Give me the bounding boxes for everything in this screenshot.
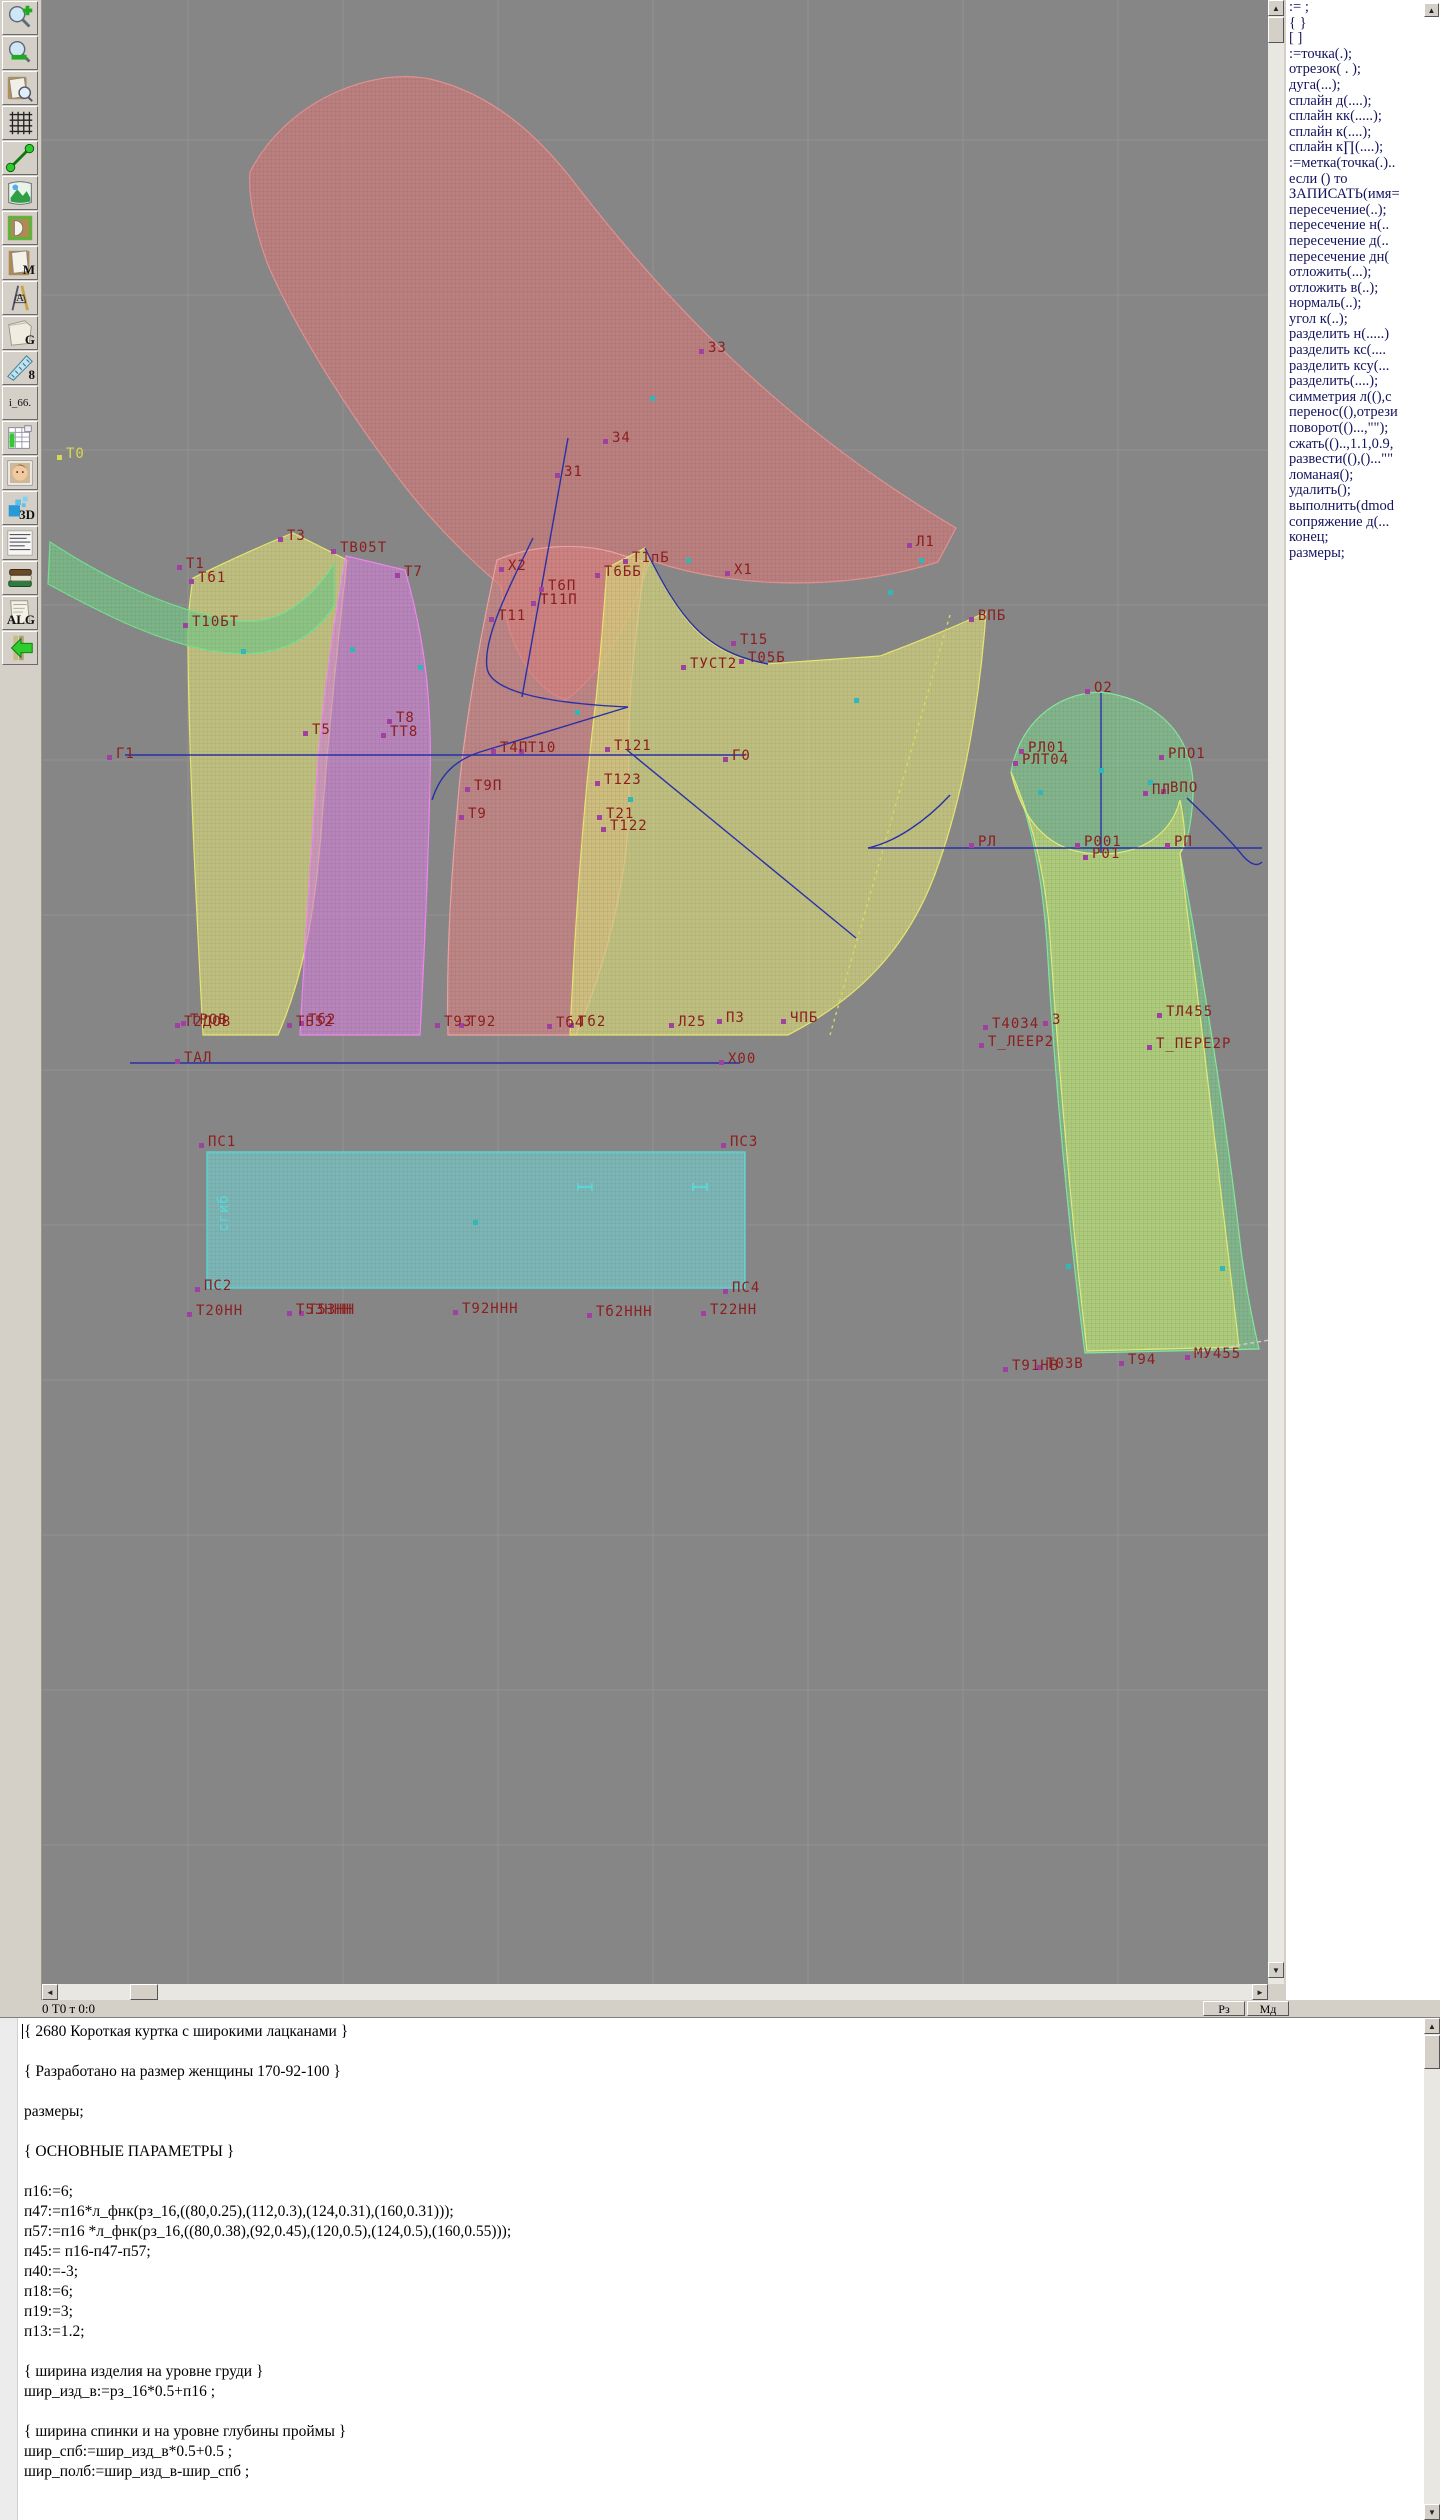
point-marker — [183, 623, 188, 628]
point-label: Х1 — [734, 562, 753, 578]
point-label: Г1 — [116, 746, 135, 762]
pattern-piece-undersleeve-yellow[interactable] — [1011, 772, 1239, 1351]
point-marker — [587, 1313, 592, 1318]
point-marker-teal — [241, 649, 246, 654]
point-marker — [723, 757, 728, 762]
point-label: ВПО — [1170, 780, 1198, 796]
point-label: ВПБ — [978, 608, 1006, 624]
point-marker — [699, 349, 704, 354]
point-label: Тб2 — [308, 1012, 336, 1028]
point-marker-teal — [1099, 768, 1104, 773]
point-label: МУ455 — [1194, 1346, 1241, 1362]
exit-arrow-button[interactable] — [2, 631, 38, 665]
drafting-tools-icon — [3, 282, 37, 314]
editor-line[interactable] — [24, 2082, 511, 2102]
three-d-icon — [3, 492, 37, 524]
point-marker — [717, 1019, 722, 1024]
books-button[interactable] — [2, 561, 38, 595]
command-item[interactable]: { } — [1286, 16, 1440, 32]
command-item[interactable]: дуга(...); — [1286, 78, 1440, 94]
command-item[interactable]: [ ] — [1286, 31, 1440, 47]
point-label: Т20НН — [196, 1303, 243, 1319]
point-marker — [701, 1311, 706, 1316]
command-item[interactable]: размеры; — [1286, 546, 1440, 562]
editor-line[interactable]: п40:=-3; — [24, 2262, 511, 2282]
point-label: ТРОВ — [190, 1012, 228, 1028]
point-label: ПС2 — [204, 1278, 232, 1294]
program-text-editor[interactable]: { 2680 Короткая куртка с широкими лацкан… — [0, 2017, 1440, 2520]
m-document-button[interactable]: M — [2, 246, 38, 280]
command-item[interactable]: разделить кс(.... — [1286, 343, 1440, 359]
point-label: Т9 — [468, 806, 487, 822]
m-document-icon — [3, 247, 37, 279]
editor-line[interactable] — [24, 2402, 511, 2422]
point-marker — [719, 1060, 724, 1065]
blue-ruler-button[interactable]: 8 — [2, 351, 38, 385]
point-label: ТАЛ — [184, 1050, 212, 1066]
i66-button[interactable]: i_66. — [2, 386, 38, 420]
rz-button[interactable]: Рз — [1203, 2001, 1245, 2016]
canvas-hscroll-left-arrow[interactable]: ◄ — [42, 1984, 58, 2000]
point-marker — [177, 565, 182, 570]
point-marker-teal — [628, 797, 633, 802]
command-item[interactable]: сплайн к∏(....); — [1286, 140, 1440, 156]
three-d-button[interactable]: 3D — [2, 491, 38, 525]
command-item[interactable]: сжать(()..,1.1,0.9, — [1286, 437, 1440, 453]
point-label: РЛТ04 — [1022, 752, 1069, 768]
pattern-drawing[interactable]: Т0З3З4З1Т3ТВ05ТТ1Тб1Т7Т10БТХ2Т1пБТ6ББТ6П… — [42, 0, 1268, 1984]
point-label: Т0ЗВ — [1046, 1356, 1084, 1372]
editor-line[interactable] — [24, 2342, 511, 2362]
point-marker-teal — [350, 647, 355, 652]
point-marker — [1119, 1361, 1124, 1366]
point-marker-teal — [1066, 1264, 1071, 1269]
line-sleeve-curve-right — [1187, 798, 1262, 864]
g-document-button[interactable]: G — [2, 316, 38, 350]
editor-line[interactable]: шир_полб:=шир_изд_в-шир_спб ; — [24, 2462, 511, 2482]
segment-icon — [3, 142, 37, 174]
command-item[interactable]: разделить ксу(... — [1286, 359, 1440, 375]
point-label: Т4П — [500, 740, 528, 756]
point-marker — [605, 747, 610, 752]
point-marker — [681, 665, 686, 670]
point-label: Т40З4 — [992, 1016, 1039, 1032]
point-marker — [287, 1023, 292, 1028]
g-document-icon — [3, 317, 37, 349]
point-marker-teal — [888, 590, 893, 595]
point-label: З4 — [612, 430, 631, 446]
command-item[interactable]: пересечение дн( — [1286, 250, 1440, 266]
point-marker — [1185, 1355, 1190, 1360]
point-label: Т10БТ — [192, 614, 239, 630]
point-label: ПС3 — [730, 1134, 758, 1150]
point-label: Т6ББ — [604, 564, 642, 580]
point-label: Т5 — [312, 722, 331, 738]
point-marker-teal — [473, 1220, 478, 1225]
editor-vscrollbar[interactable]: ▲ ▼ — [1424, 2018, 1440, 2520]
measure-segment-button[interactable] — [2, 141, 38, 175]
point-marker — [1003, 1367, 1008, 1372]
canvas-vscroll-down-arrow[interactable]: ▼ — [1268, 1962, 1284, 1978]
point-marker — [781, 1019, 786, 1024]
point-label: Т92ННН — [462, 1301, 519, 1317]
command-item[interactable]: если () то — [1286, 172, 1440, 188]
point-marker-teal — [919, 558, 924, 563]
editor-line[interactable]: шир_спб:=шир_изд_в*0.5+0.5 ; — [24, 2442, 511, 2462]
i66-label: i_66. — [3, 387, 37, 419]
point-label: ТВ05Т — [340, 540, 387, 556]
point-label: З3 — [708, 340, 727, 356]
size-table-button[interactable] — [2, 421, 38, 455]
point-label: ПС1 — [208, 1134, 236, 1150]
command-item[interactable]: :=метка(точка(.).. — [1286, 156, 1440, 172]
point-marker — [1159, 755, 1164, 760]
alg-document-button[interactable]: ALG — [2, 596, 38, 630]
point-label: Т92 — [468, 1014, 496, 1030]
point-marker — [331, 549, 336, 554]
point-marker — [453, 1310, 458, 1315]
canvas-hscroll-thumb[interactable] — [130, 1984, 158, 2000]
image-view-button[interactable] — [2, 176, 38, 210]
point-marker-teal — [854, 698, 859, 703]
point-label: Т_ЛЕЕР2 — [988, 1034, 1054, 1050]
editor-line[interactable]: п13:=1.2; — [24, 2322, 511, 2342]
editor-line[interactable] — [24, 2042, 511, 2062]
status-bar: 0 Т0 т 0:0 Рз Мд — [0, 2000, 1440, 2017]
point-label: Т53НН — [308, 1302, 355, 1318]
blue-ruler-icon — [3, 352, 37, 384]
pattern-piece-button[interactable] — [2, 211, 38, 245]
command-item[interactable]: удалить(); — [1286, 483, 1440, 499]
point-marker-teal — [1038, 790, 1043, 795]
point-marker — [57, 455, 62, 460]
command-item[interactable]: отложить(...); — [1286, 265, 1440, 281]
point-label: ТУСТ2 — [690, 656, 737, 672]
point-marker-teal — [1220, 1266, 1225, 1271]
command-item[interactable]: := ; — [1286, 0, 1440, 16]
command-item[interactable]: ломаная(); — [1286, 468, 1440, 484]
command-item[interactable]: развести((),()..."" — [1286, 452, 1440, 468]
point-label: Т15 — [740, 632, 768, 648]
point-marker — [969, 843, 974, 848]
point-label: ТЛ455 — [1166, 1004, 1213, 1020]
drawing-canvas[interactable]: Т0З3З4З1Т3ТВ05ТТ1Тб1Т7Т10БТХ2Т1пБТ6ББТ6П… — [42, 0, 1268, 1984]
point-marker — [175, 1059, 180, 1064]
point-marker — [603, 439, 608, 444]
point-label: Т_ПЕРЕ2Р — [1156, 1036, 1231, 1052]
canvas-hscroll-right-arrow[interactable]: ► — [1252, 1984, 1268, 2000]
point-marker — [1083, 855, 1088, 860]
point-label: Т0 — [66, 446, 85, 462]
point-label: Л1 — [916, 534, 935, 550]
point-marker — [381, 733, 386, 738]
point-marker — [979, 1043, 984, 1048]
point-label: Т122 — [610, 818, 648, 834]
point-label: Т3 — [287, 528, 306, 544]
editor-text[interactable]: { 2680 Короткая куртка с широкими лацкан… — [24, 2022, 511, 2482]
status-coordinates: 0 Т0 т 0:0 — [42, 2001, 95, 2017]
point-label: Т22НН — [710, 1302, 757, 1318]
point-marker — [723, 1289, 728, 1294]
editor-line[interactable]: { ширина изделия на уровне груди } — [24, 2362, 511, 2382]
command-item[interactable]: отрезок( . ); — [1286, 62, 1440, 78]
point-label: Т123 — [604, 772, 642, 788]
editor-line[interactable]: п19:=3; — [24, 2302, 511, 2322]
point-label: Тб1 — [198, 570, 226, 586]
command-item[interactable]: поворот(()...,""); — [1286, 421, 1440, 437]
editor-vscroll-thumb[interactable] — [1424, 2035, 1440, 2069]
editor-line[interactable]: п47:=п16*л_фнк(рз_16,((80,0.25),(112,0.3… — [24, 2202, 511, 2222]
command-panel-scroll-up-arrow[interactable]: ▲ — [1424, 3, 1439, 17]
point-marker — [187, 1312, 192, 1317]
text-cursor — [22, 2024, 23, 2039]
image-icon — [3, 177, 37, 209]
point-marker — [489, 617, 494, 622]
editor-line[interactable]: п16:=6; — [24, 2182, 511, 2202]
editor-vscroll-down-arrow[interactable]: ▼ — [1424, 2504, 1440, 2520]
size-table-icon — [3, 422, 37, 454]
command-item[interactable]: угол к(..); — [1286, 312, 1440, 328]
point-marker-teal — [575, 710, 580, 715]
command-item[interactable]: :=точка(.); — [1286, 47, 1440, 63]
point-label: ПС4 — [732, 1280, 760, 1296]
point-marker — [595, 781, 600, 786]
point-marker — [595, 573, 600, 578]
alg-document-icon — [3, 597, 37, 629]
left-toolbar: M A G 8 i_66. 3D ALG — [0, 0, 42, 2000]
command-item[interactable]: перенос((),отрези — [1286, 405, 1440, 421]
point-label: Тб2 — [578, 1014, 606, 1030]
point-marker-teal — [418, 665, 423, 670]
point-label: РПО1 — [1168, 746, 1206, 762]
text-list-icon — [3, 527, 37, 559]
point-label: Т7 — [404, 564, 423, 580]
point-marker — [731, 641, 736, 646]
point-label: ПЗ — [726, 1010, 745, 1026]
point-marker — [175, 1023, 180, 1028]
point-label: Р01 — [1092, 846, 1120, 862]
point-marker — [1085, 689, 1090, 694]
point-marker — [499, 567, 504, 572]
point-marker — [721, 1143, 726, 1148]
point-marker — [669, 1023, 674, 1028]
point-marker — [1165, 843, 1170, 848]
command-item[interactable]: сплайн д(....); — [1286, 94, 1440, 110]
exit-arrow-icon — [3, 632, 37, 664]
point-marker — [547, 1024, 552, 1029]
editor-line[interactable]: п18:=6; — [24, 2282, 511, 2302]
point-label: ПЛ — [1152, 782, 1171, 798]
command-item[interactable]: разделить(....); — [1286, 374, 1440, 390]
point-label: Тб2ННН — [596, 1304, 653, 1320]
zoom-out-icon — [3, 37, 37, 69]
editor-line[interactable]: { ширина спинки и на уровне глубины прой… — [24, 2422, 511, 2442]
point-label: Х00 — [728, 1051, 756, 1067]
point-marker — [435, 1023, 440, 1028]
point-marker — [983, 1025, 988, 1030]
canvas-hscrollbar[interactable]: ◄ ► — [42, 1984, 1268, 2000]
command-item[interactable]: конец; — [1286, 530, 1440, 546]
point-marker — [195, 1287, 200, 1292]
md-button[interactable]: Мд — [1247, 2001, 1289, 2016]
command-item[interactable]: симметрия л((),c — [1286, 390, 1440, 406]
point-marker — [969, 617, 974, 622]
pattern-piece-icon — [3, 212, 37, 244]
zoom-out-button[interactable] — [2, 36, 38, 70]
editor-line[interactable] — [24, 2162, 511, 2182]
editor-gutter — [0, 2018, 18, 2520]
editor-line[interactable]: { 2680 Короткая куртка с широкими лацкан… — [24, 2022, 511, 2042]
command-item[interactable]: разделить н(.....) — [1286, 327, 1440, 343]
command-item[interactable]: сплайн к(....); — [1286, 125, 1440, 141]
point-label: ЧПБ — [790, 1010, 818, 1026]
editor-line[interactable]: шир_изд_в:=рз_16*0.5+п16 ; — [24, 2382, 511, 2402]
text-list-button[interactable] — [2, 526, 38, 560]
point-marker — [395, 573, 400, 578]
command-item[interactable]: сопряжение д(... — [1286, 515, 1440, 531]
point-marker — [459, 815, 464, 820]
canvas-vscrollbar[interactable]: ▲ ▼ — [1268, 0, 1284, 1984]
point-marker — [107, 755, 112, 760]
point-marker — [739, 659, 744, 664]
point-label: 3 — [1052, 1012, 1061, 1028]
drafting-tools-button[interactable]: A — [2, 281, 38, 315]
point-marker — [601, 827, 606, 832]
point-marker — [725, 571, 730, 576]
point-marker — [1143, 791, 1148, 796]
command-item[interactable]: нормаль(..); — [1286, 296, 1440, 312]
zoom-in-icon — [3, 2, 37, 34]
point-label: Х2 — [508, 558, 527, 574]
command-item[interactable]: ЗАПИСАТЬ(имя= — [1286, 187, 1440, 203]
command-item[interactable]: выполнить(dmod — [1286, 499, 1440, 515]
point-label: РП — [1174, 834, 1193, 850]
editor-line[interactable]: п57:=п16 *л_фнк(рз_16,((80,0.38),(92,0.4… — [24, 2222, 511, 2242]
canvas-vscroll-up-arrow[interactable]: ▲ — [1268, 0, 1284, 16]
point-label: Т10 — [528, 740, 556, 756]
point-label: ТТ8 — [390, 724, 418, 740]
grid-button[interactable] — [2, 106, 38, 140]
editor-line[interactable]: размеры; — [24, 2102, 511, 2122]
point-label: Т11 — [498, 608, 526, 624]
point-label: Т94 — [1128, 1352, 1156, 1368]
editor-line[interactable]: { Разработано на размер женщины 170-92-1… — [24, 2062, 511, 2082]
pattern-piece-front-piece-yellow[interactable] — [570, 548, 986, 1035]
point-label: Л25 — [678, 1014, 706, 1030]
point-label: Т9П — [474, 778, 502, 794]
point-marker — [278, 537, 283, 542]
point-label: Т05Б — [748, 650, 786, 666]
portrait-button[interactable] — [2, 456, 38, 490]
point-marker — [597, 815, 602, 820]
point-marker — [1013, 761, 1018, 766]
point-marker — [491, 749, 496, 754]
books-icon — [3, 562, 37, 594]
point-marker — [189, 579, 194, 584]
point-marker — [303, 731, 308, 736]
point-marker — [555, 473, 560, 478]
command-panel: := ;{ }[ ]:=точка(.);отрезок( . );дуга(.… — [1286, 0, 1440, 2000]
editor-line[interactable] — [24, 2122, 511, 2142]
point-marker — [531, 601, 536, 606]
point-label: Т11П — [540, 592, 578, 608]
point-marker — [907, 543, 912, 548]
editor-line[interactable]: п45:= п16-п47-п57; — [24, 2242, 511, 2262]
point-marker — [465, 787, 470, 792]
point-label: О2 — [1094, 680, 1113, 696]
grid-icon — [3, 107, 37, 139]
point-label: Г0 — [732, 748, 751, 764]
point-marker — [1157, 1013, 1162, 1018]
cad-application-window: M A G 8 i_66. 3D ALG — [0, 0, 1440, 2520]
command-item[interactable]: пересечение н(.. — [1286, 218, 1440, 234]
point-label: Т121 — [614, 738, 652, 754]
page-preview-icon — [3, 72, 37, 104]
command-item[interactable]: отложить в(..); — [1286, 281, 1440, 297]
zoom-in-button[interactable] — [2, 1, 38, 35]
command-item[interactable]: пересечение(..); — [1286, 203, 1440, 219]
command-item[interactable]: пересечение д(.. — [1286, 234, 1440, 250]
point-label: РЛ — [978, 834, 997, 850]
point-label: З1 — [564, 464, 583, 480]
canvas-vscroll-thumb[interactable] — [1268, 17, 1284, 43]
point-marker — [1147, 1045, 1152, 1050]
portrait-icon — [3, 457, 37, 489]
page-preview-button[interactable] — [2, 71, 38, 105]
point-marker-teal — [686, 558, 691, 563]
point-marker-teal — [650, 396, 655, 401]
point-marker — [287, 1311, 292, 1316]
point-marker — [199, 1143, 204, 1148]
command-item[interactable]: сплайн кк(.....); — [1286, 109, 1440, 125]
point-marker — [1043, 1021, 1048, 1026]
point-marker — [1075, 843, 1080, 848]
editor-line[interactable]: { ОСНОВНЫЕ ПАРАМЕТРЫ } — [24, 2142, 511, 2162]
point-label: сгиб — [216, 1194, 232, 1232]
editor-vscroll-up-arrow[interactable]: ▲ — [1424, 2018, 1440, 2034]
